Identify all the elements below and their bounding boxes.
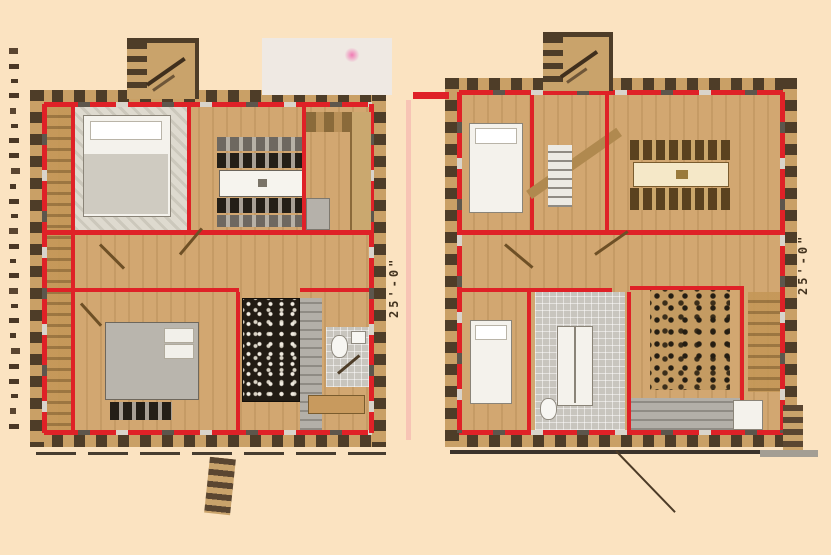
dining-chairs-back-row-2 [217,215,305,227]
dining-chairs-top [630,140,730,160]
tick-mark [9,199,19,204]
tick-mark [10,184,16,189]
edge-tick-column [9,48,20,439]
kitchen-appliance [306,198,330,230]
toilet [540,398,557,420]
closet-door-divider [574,327,576,403]
hallway [75,235,369,288]
foundation-shadow-left [36,452,386,455]
closet-doors [557,326,593,406]
tick-mark [11,79,18,83]
log-wall-right [783,78,797,447]
tick-mark [10,333,16,338]
dining-area [191,107,302,230]
stone-hearth-right [650,290,730,390]
kitchen-counter-right [350,112,371,230]
tick-mark [9,244,19,249]
tick-mark [10,408,16,414]
porch-log-ends [127,43,147,94]
stone-hearth [242,298,300,402]
tick-mark [11,304,18,308]
bedroom-bottom-left [75,292,236,430]
log-wall-right [372,90,386,447]
table-centerpiece [676,170,688,179]
interior-wall [740,286,744,401]
interior-wall-stair [236,292,240,430]
kitchen [306,107,369,230]
left-floor-plan [30,90,386,447]
stair-treads [548,145,572,207]
dining-chairs-bottom [217,198,305,213]
red-wall-bottom [459,430,783,435]
bed-blanket [84,154,168,214]
table-centerpiece [258,179,267,187]
bedroom-bottom-left [462,292,527,430]
tick-mark [9,48,18,54]
bed-4-pillow [475,325,507,340]
tick-mark [11,168,20,174]
tick-mark [11,394,18,398]
closet-shelf-strip [47,107,71,430]
dining-table [633,162,729,187]
bed-3-pillow [475,128,517,144]
floor-plan-sheet: 25'-0" [0,0,831,555]
bed-2-pillow [164,328,194,343]
door-swing-line [99,243,125,269]
bathroom [326,327,369,387]
deck-light-dot [344,48,360,62]
tick-mark [10,259,16,263]
sink [351,331,366,344]
bed-4 [470,320,512,404]
tick-mark [9,364,19,369]
bathroom-right-plan [535,292,625,430]
dining-chairs-bottom [630,188,730,210]
bedroom-top-left [75,107,187,230]
stair-hall [534,95,605,230]
tick-mark [9,64,19,69]
toilet [331,335,348,358]
red-wall-bottom [44,430,372,435]
tick-mark [9,153,19,158]
door-swing-line [80,302,102,326]
tick-mark [11,214,18,218]
foundation-shadow-right [450,450,762,454]
closet-shelf-strip [748,292,780,392]
red-wall-right [780,92,785,433]
tick-mark [9,318,19,323]
bed-2-pillow [164,344,194,359]
bed-3 [469,123,523,213]
upper-deck [262,38,392,95]
fold-line [406,100,411,440]
fixture [733,400,763,430]
tick-mark [11,124,18,128]
log-wall-bottom [445,433,797,447]
bedroom-top-left [462,95,530,230]
tick-mark [9,273,19,278]
bed-2 [105,322,199,400]
bed-pillow [90,121,162,140]
tick-mark [9,138,19,143]
wall-stub [413,92,449,99]
dimension-label-right: 25'-0" [796,203,810,295]
entry-porch-right [543,32,613,91]
dresser [110,402,172,420]
dining-chairs-back-row [217,137,305,151]
dimension-label-left: 25'-0" [387,226,401,318]
tick-mark [9,288,18,294]
dining-chairs-top [217,153,305,168]
tick-mark [11,348,20,354]
leader-line-diagonal [615,450,675,513]
tick-mark [9,379,19,384]
porch-log-ends [543,37,563,86]
bed [83,115,171,217]
dining-area-right [609,95,780,230]
tick-mark [9,228,18,234]
dining-table [219,170,305,197]
interior-wall-lower-right [300,288,369,292]
interior-wall [527,292,531,430]
side-table [308,395,365,414]
log-wall-bottom [30,433,386,447]
entry-porch-left [127,38,199,99]
exterior-stair-down [204,457,236,515]
exterior-steps-right [783,405,803,450]
tick-mark [9,93,19,98]
right-floor-plan [445,78,797,447]
tick-mark [9,424,19,429]
tick-mark [10,108,16,114]
foundation-shadow-gray [760,450,818,457]
lower-landing [631,398,740,430]
